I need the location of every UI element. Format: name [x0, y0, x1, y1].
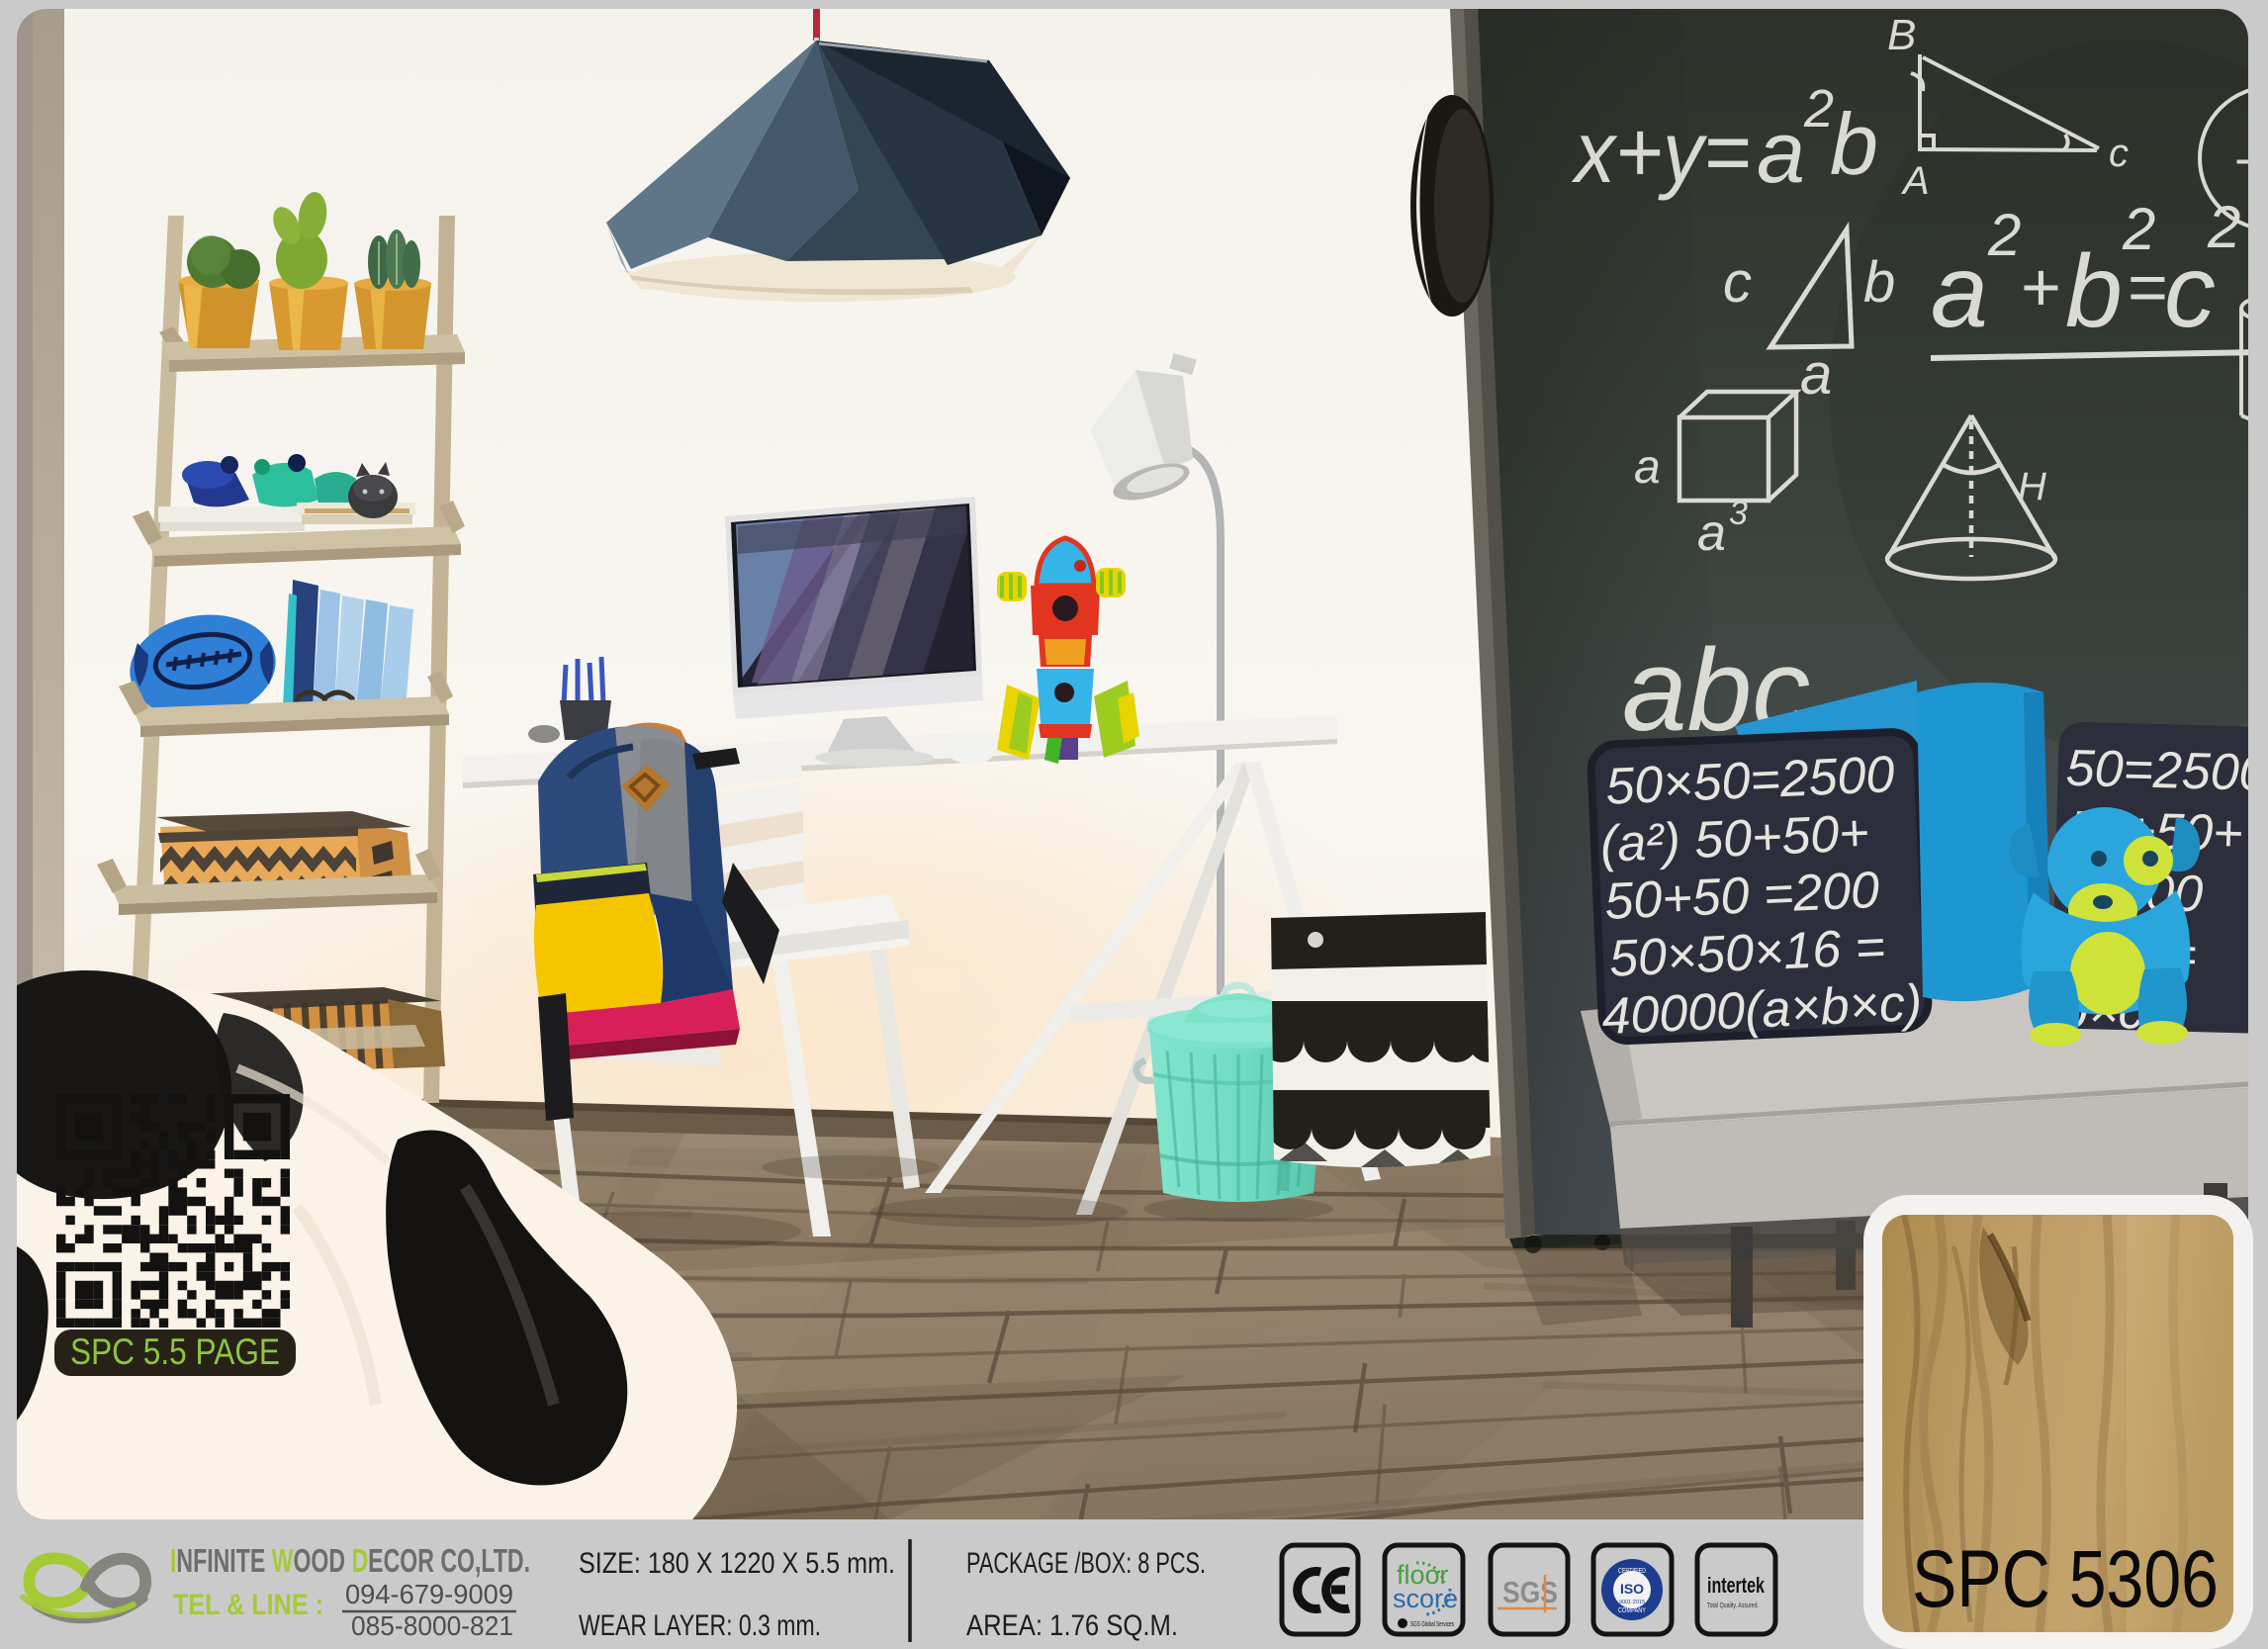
- svg-text:x+y=: x+y=: [1571, 103, 1751, 201]
- svg-text:score: score: [1393, 1584, 1458, 1613]
- svg-text:9001:2015: 9001:2015: [1619, 1600, 1645, 1605]
- svg-text:SIZE: 180 X 1220 X 5.5 mm.: SIZE: 180 X 1220 X 5.5 mm.: [579, 1547, 895, 1580]
- svg-text:a: a: [1697, 504, 1726, 562]
- svg-text:b: b: [2065, 234, 2123, 349]
- svg-text:2: 2: [2207, 194, 2240, 260]
- svg-text:SGS: SGS: [1502, 1575, 1558, 1609]
- svg-text:50=2500: 50=2500: [2065, 740, 2268, 802]
- svg-text:c: c: [2109, 132, 2129, 175]
- svg-text:TEL & LINE :: TEL & LINE :: [173, 1589, 323, 1621]
- svg-text:intertek: intertek: [1707, 1573, 1766, 1598]
- svg-text:c: c: [1723, 250, 1752, 315]
- svg-text:085-8000-821: 085-8000-821: [351, 1610, 513, 1641]
- svg-text:SPC 5306: SPC 5306: [1912, 1534, 2219, 1624]
- svg-text:+: +: [2020, 248, 2060, 325]
- svg-text:B: B: [1887, 11, 1916, 59]
- svg-text:CERTIFIED: CERTIFIED: [1618, 1568, 1646, 1575]
- svg-text:SGS Global Services: SGS Global Services: [1410, 1621, 1454, 1628]
- svg-text:a: a: [1931, 234, 1988, 349]
- svg-text:=: =: [2127, 248, 2167, 325]
- svg-text:2: 2: [1987, 202, 2021, 268]
- svg-text:A: A: [1901, 159, 1930, 203]
- svg-text:INFINITE WOOD DECOR CO,LTD.: INFINITE WOOD DECOR CO,LTD.: [170, 1542, 530, 1579]
- svg-text:Total Quality. Assured.: Total Quality. Assured.: [1707, 1601, 1759, 1609]
- svg-text:a: a: [1757, 103, 1805, 201]
- svg-text:PACKAGE /BOX: 8 PCS.: PACKAGE /BOX: 8 PCS.: [966, 1547, 1206, 1580]
- svg-text:b: b: [1863, 250, 1895, 315]
- svg-text:ISO: ISO: [1620, 1581, 1644, 1597]
- svg-text:H: H: [2018, 465, 2046, 508]
- svg-text:WEAR LAYER: 0.3 mm.: WEAR LAYER: 0.3 mm.: [579, 1609, 821, 1642]
- svg-text:b: b: [1830, 95, 1878, 193]
- svg-text:a: a: [1800, 342, 1832, 407]
- svg-text:SPC 5.5 PAGE: SPC 5.5 PAGE: [70, 1331, 280, 1372]
- svg-text:3: 3: [1729, 495, 1748, 532]
- svg-text:094-679-9009: 094-679-9009: [345, 1579, 513, 1609]
- svg-text:COMPANY: COMPANY: [1618, 1607, 1646, 1614]
- svg-text:a: a: [1634, 441, 1661, 494]
- svg-text:AREA: 1.76 SQ.M.: AREA: 1.76 SQ.M.: [966, 1609, 1178, 1642]
